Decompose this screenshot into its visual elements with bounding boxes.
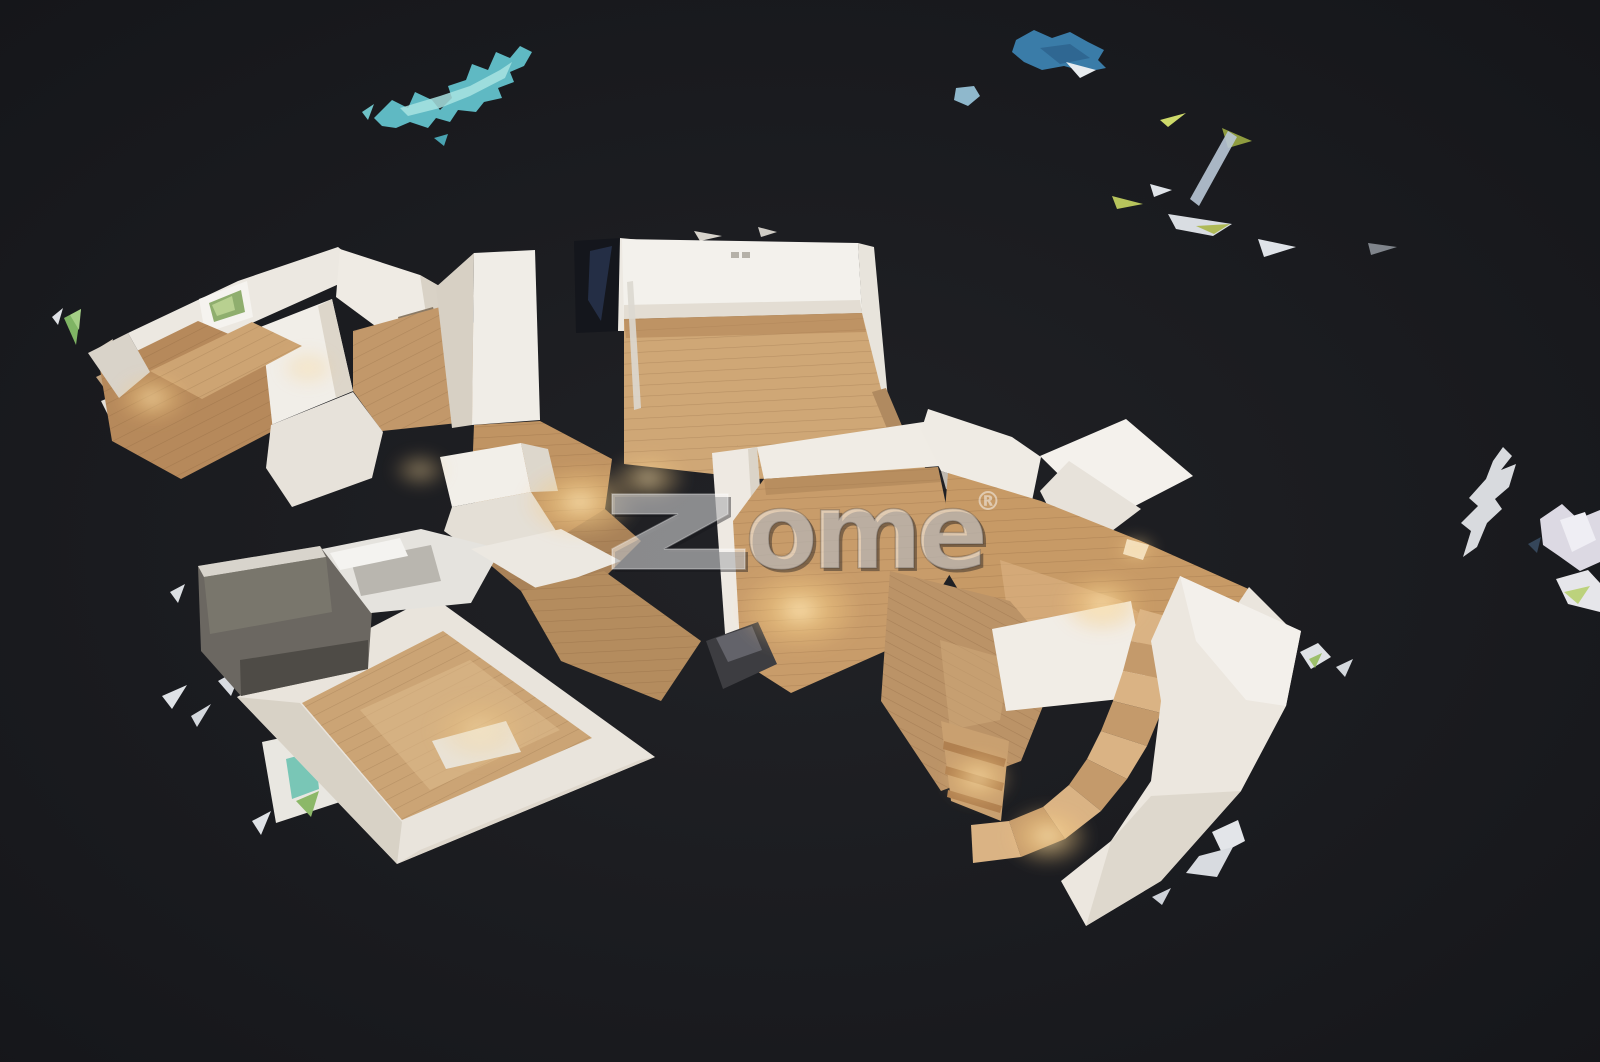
lamp-glow [114,372,190,424]
lamp-glow [942,750,1014,806]
lamp-glow [390,450,450,490]
watermark-registered-mark: ® [975,487,1001,517]
lamp-glow [1056,572,1148,636]
wall-socket [742,252,750,258]
wall-socket [731,252,739,258]
kitchen-left-wall [472,250,540,425]
dollhouse-3d-viewport[interactable]: omeome® [0,0,1600,1062]
lamp-glow [1004,804,1092,868]
dollhouse-3d-render[interactable]: omeome® [0,0,1600,1062]
lamp-glow [278,348,338,388]
lamp-glow [1114,535,1158,563]
lamp-glow [428,694,532,766]
watermark-text: ome [745,470,983,593]
